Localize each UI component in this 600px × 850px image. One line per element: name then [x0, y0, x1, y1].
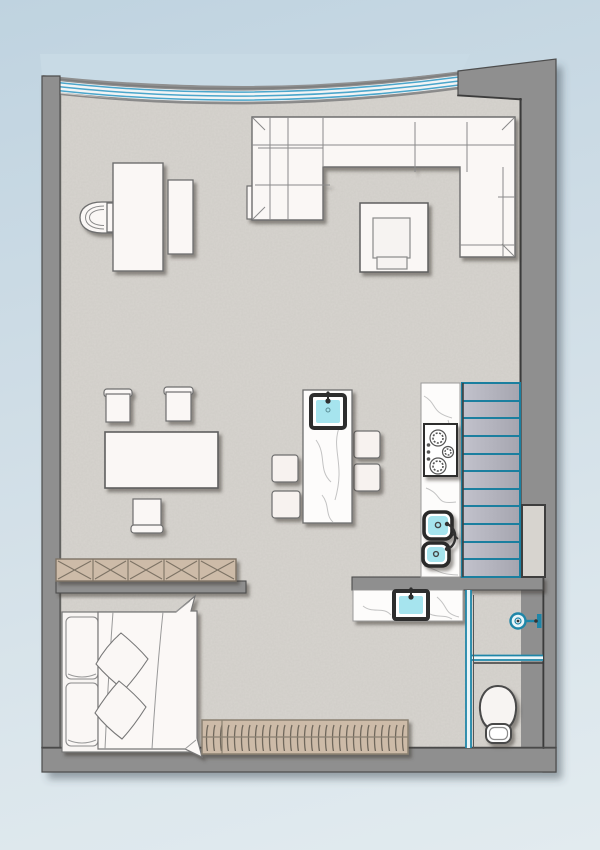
bar-stool: [354, 464, 380, 491]
kitchen-counter: [421, 383, 460, 577]
cooktop: [424, 424, 457, 476]
dining-chair: [131, 499, 163, 533]
desk: [113, 163, 163, 271]
bedroom-wall: [56, 581, 246, 593]
staircase: [462, 383, 520, 577]
bar-stool: [272, 491, 300, 518]
vanity: [353, 587, 463, 621]
kitchen-island: [303, 390, 352, 523]
bathroom-wall: [352, 577, 543, 590]
dining-table: [105, 432, 218, 488]
toilet: [480, 686, 516, 743]
floor-plan-canvas: [0, 0, 600, 850]
wall-niche: [522, 505, 545, 577]
bed: [62, 596, 202, 757]
vanity-sink: [394, 587, 428, 619]
floor-plan-drawing: [0, 0, 600, 850]
cooktop-knobs: [427, 443, 431, 461]
dining-chair: [164, 387, 193, 421]
wardrobe-crossed: [56, 559, 236, 581]
bar-stool: [272, 455, 298, 482]
side-cabinet: [168, 180, 193, 254]
coffee-table: [360, 203, 428, 272]
left-wall: [42, 76, 60, 748]
island-sink: [311, 391, 345, 428]
hanger-bench: [202, 720, 408, 754]
bar-stool: [354, 431, 380, 458]
dining-chair: [104, 389, 132, 422]
